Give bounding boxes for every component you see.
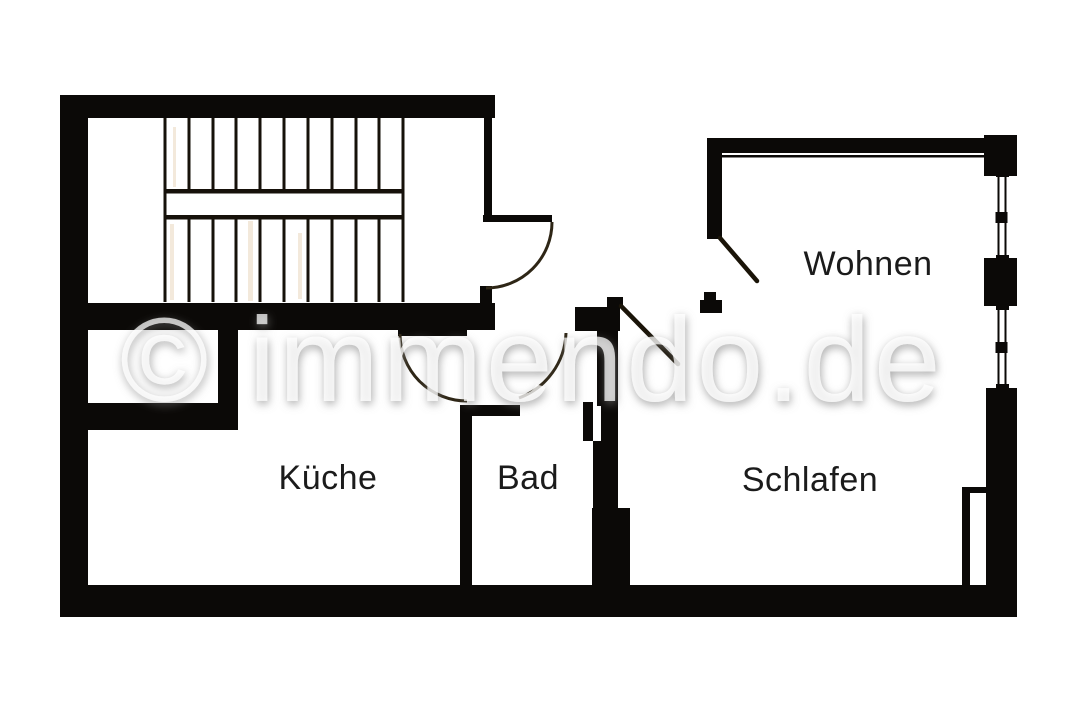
wall-outer-left — [60, 95, 88, 617]
wall-bad-pillar — [592, 508, 630, 585]
watermark: © immendo.de — [120, 293, 944, 427]
room-label-bad: Bad — [497, 459, 559, 497]
room-label-kueche: Küche — [279, 459, 378, 497]
wall-bad-left — [460, 405, 472, 585]
wall-stair-right — [484, 118, 492, 218]
wall-bad-right-c — [593, 441, 618, 508]
wall-outer-bottom — [60, 585, 1017, 617]
window-mullion-icon — [996, 212, 1008, 223]
door-leaf-staircase — [483, 215, 552, 222]
wall-niche-left — [962, 487, 970, 585]
floorplan-page: Wohnen Küche Bad Schlafen © immendo.de — [0, 0, 1080, 720]
wall-outer-top — [60, 95, 495, 118]
wall-wohnen-top-line — [722, 155, 984, 158]
room-label-wohnen: Wohnen — [803, 245, 932, 283]
wall-right-lower — [986, 388, 1017, 617]
wall-niche-cap — [962, 487, 987, 493]
wall-stair-corner — [475, 95, 495, 118]
floorplan-canvas: Wohnen Küche Bad Schlafen © immendo.de — [0, 0, 1080, 720]
window-mullion-icon — [996, 342, 1008, 353]
stair-rail-upper — [165, 189, 403, 194]
stair-rail-lower — [165, 215, 403, 220]
room-label-schlafen: Schlafen — [742, 461, 878, 499]
wall-right-top-pier — [984, 135, 1017, 176]
wall-wohnen-top — [707, 138, 985, 153]
wall-wohnen-left — [707, 138, 722, 239]
wall-right-mid-pier — [984, 258, 1017, 306]
